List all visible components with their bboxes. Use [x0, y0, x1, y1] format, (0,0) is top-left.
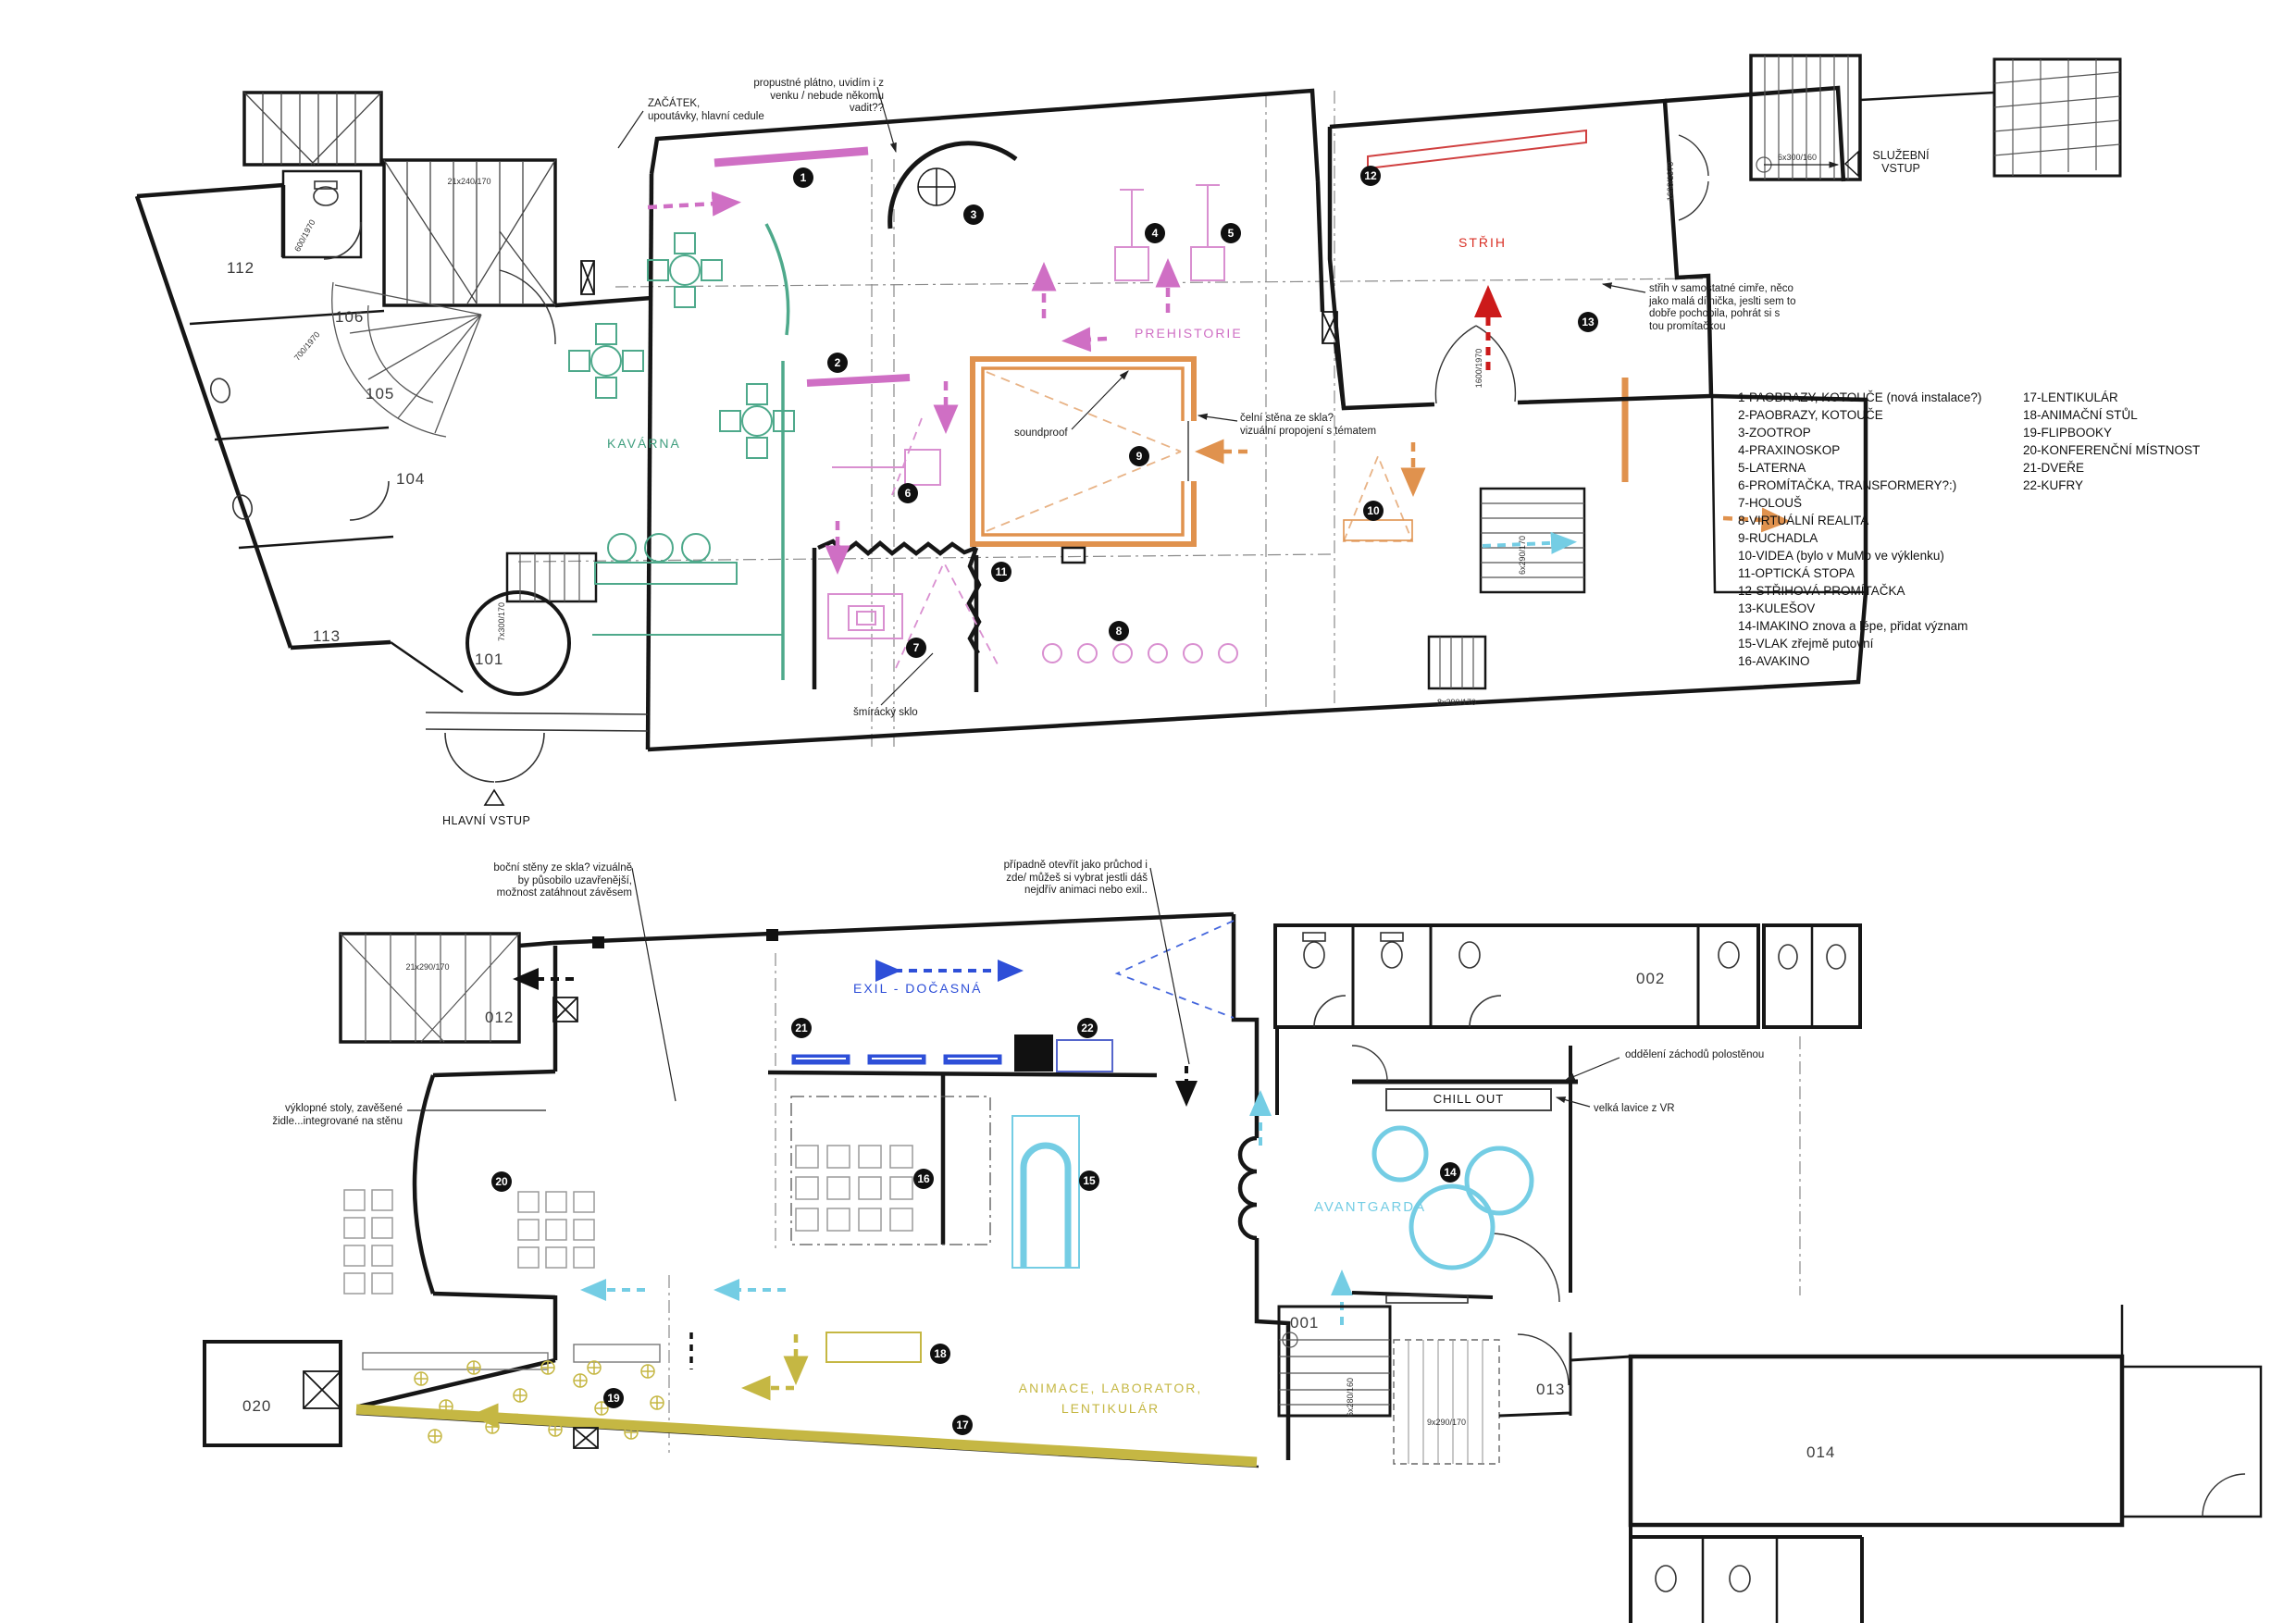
svg-text:10: 10 — [1367, 504, 1380, 517]
svg-text:18: 18 — [934, 1347, 947, 1360]
svg-text:6: 6 — [905, 487, 912, 500]
item-badge: 10 — [1363, 501, 1384, 521]
item-badge: 5 — [1221, 223, 1241, 243]
item-badge: 15 — [1079, 1171, 1099, 1191]
item-badge: 11 — [991, 562, 1011, 582]
item-badge: 22 — [1077, 1018, 1098, 1038]
door-label: 1600/1970 — [1474, 349, 1483, 389]
svg-text:17: 17 — [956, 1419, 969, 1431]
legend-item: 9-RUCHADLA — [1738, 529, 1981, 547]
entry-triangle — [1845, 152, 1858, 176]
svg-text:22: 22 — [1081, 1022, 1094, 1035]
legend-item: 13-KULEŠOV — [1738, 600, 1981, 617]
label-chill-out: CHILL OUT — [1386, 1092, 1551, 1106]
vestibule-101 — [426, 553, 648, 782]
room-number-014: 014 — [1806, 1443, 1835, 1462]
room-number-113: 113 — [313, 627, 341, 646]
annotation-bocni-steny: boční stěny ze skla? vizuálně by působil… — [477, 862, 632, 900]
pillar — [1014, 1035, 1053, 1072]
legend-item: 18-ANIMAČNÍ STŮL — [2023, 406, 2200, 424]
rooms-013-014 — [1499, 1305, 2261, 1623]
entrance-triangle — [485, 790, 503, 805]
room-label-prehistorie: PREHISTORIE — [1135, 326, 1243, 341]
svg-text:4: 4 — [1152, 227, 1159, 240]
room-label-kavarna: KAVÁRNA — [607, 436, 681, 451]
item-badge: 3 — [963, 204, 984, 225]
annotation-propustne: propustné plátno, uvidím i z venku / neb… — [731, 78, 884, 116]
legend-item: 4-PRAXINOSKOP — [1738, 441, 1981, 459]
legend-item: 15-VLAK zřejmě putovní — [1738, 635, 1981, 652]
door-label: 700/1970 — [292, 329, 322, 362]
legend-item: 17-LENTIKULÁR — [2023, 389, 2200, 406]
legend-item: 21-DVEŘE — [2023, 459, 2200, 477]
item-badge: 13 — [1578, 312, 1598, 332]
stair-6x290 — [1481, 489, 1584, 592]
legend-column-2: 17-LENTIKULÁR18-ANIMAČNÍ STŮL19-FLIPBOOK… — [2023, 389, 2200, 494]
legend-item: 2-PAOBRAZY, KOTOUČE — [1738, 406, 1981, 424]
avakino-seats — [344, 1146, 912, 1294]
svg-text:5: 5 — [1228, 227, 1235, 240]
room-number-104: 104 — [396, 470, 425, 489]
door-label: 1600/1970 — [1666, 162, 1675, 202]
stair-nw — [244, 93, 381, 165]
room-012-area — [520, 979, 577, 1022]
svg-text:19: 19 — [607, 1392, 620, 1405]
item-badge: 8 — [1109, 621, 1129, 641]
room-number-001: 001 — [1290, 1314, 1319, 1332]
annotation-hlavni-vstup: HLAVNÍ VSTUP — [442, 814, 530, 827]
svg-text:13: 13 — [1582, 316, 1595, 328]
legend-item: 10-VIDEA (bylo v MuMo ve výklenku) — [1738, 547, 1981, 564]
stair-label: 21x290/170 — [405, 962, 449, 972]
svg-text:15: 15 — [1083, 1174, 1096, 1187]
legend-column-1: 1-PAOBRAZY, KOTOUČE (nová instalace?)2-P… — [1738, 389, 1981, 670]
pillar — [766, 929, 778, 941]
legend-item: 19-FLIPBOOKY — [2023, 424, 2200, 441]
legend-item: 11-OPTICKÁ STOPA — [1738, 564, 1981, 582]
svg-text:1: 1 — [800, 171, 807, 184]
room-number-012: 012 — [485, 1009, 514, 1027]
lower-plan: 21x290/170 — [205, 868, 2261, 1623]
cafe-furniture — [569, 224, 794, 680]
svg-text:21: 21 — [795, 1022, 808, 1035]
leader-lines — [618, 87, 1645, 705]
room-number-013: 013 — [1536, 1381, 1565, 1399]
suitcases — [1057, 1040, 1112, 1072]
stair-label: 7x300/170 — [497, 602, 506, 641]
annotation-soundproof: soundproof — [1014, 427, 1068, 440]
legend-item: 14-IMAKINO znova a lépe, přidat význam — [1738, 617, 1981, 635]
strih-projector-bench — [1368, 130, 1586, 168]
svg-text:11: 11 — [996, 565, 1008, 578]
stair-label: 8x290/170 — [1437, 698, 1476, 707]
legend-item: 16-AVAKINO — [1738, 652, 1981, 670]
legend-item: 5-LATERNA — [1738, 459, 1981, 477]
left-wing: 21x240/170 600/1970 700/1970 — [137, 93, 652, 805]
svg-text:20: 20 — [495, 1175, 508, 1188]
stair-label: 6x280/160 — [1346, 1378, 1355, 1417]
stairs-bottom-center: 9x290/170 — [1394, 1340, 1499, 1464]
avantgarda-room — [1277, 1027, 1578, 1303]
svg-text:9: 9 — [1136, 450, 1143, 463]
legend-item: 7-HOLOUŠ — [1738, 494, 1981, 512]
svg-text:8: 8 — [1116, 625, 1123, 638]
item-badge: 7 — [906, 638, 926, 658]
svg-text:3: 3 — [971, 208, 977, 221]
legend-item: 22-KUFRY — [2023, 477, 2200, 494]
pillar — [592, 936, 604, 948]
room-label-animace: ANIMACE, LABORATOR, LENTIKULÁR — [999, 1378, 1222, 1419]
item-badge: 6 — [898, 483, 918, 503]
item-badge: 4 — [1145, 223, 1165, 243]
item-badge: 20 — [491, 1171, 512, 1192]
annotation-oddeleni: oddělení záchodů polostěnou — [1625, 1049, 1764, 1062]
prehistorie-elements — [648, 143, 1237, 668]
legend-item: 3-ZOOTROP — [1738, 424, 1981, 441]
legend-item: 12-STŘIHOVÁ PROMÍTAČKA — [1738, 582, 1981, 600]
room-020 — [205, 1342, 341, 1445]
room-number-106: 106 — [335, 308, 364, 327]
room-number-112: 112 — [227, 259, 254, 278]
svg-text:14: 14 — [1444, 1166, 1457, 1179]
stair-8x290 — [1429, 637, 1485, 688]
stair-label: 21x240/170 — [447, 177, 490, 186]
svg-text:16: 16 — [917, 1172, 930, 1185]
svg-text:2: 2 — [835, 356, 841, 369]
annotation-strih-note: střih v samostatné cimře, něco jako malá… — [1649, 283, 1796, 333]
item-badge: 17 — [952, 1415, 973, 1435]
soundproof-room — [973, 359, 1247, 563]
room-label-strih: STŘIH — [1458, 235, 1507, 250]
room-number-101: 101 — [475, 650, 503, 669]
screen-bar — [714, 151, 868, 163]
item-badge: 19 — [603, 1388, 624, 1408]
stair-label: 9x290/170 — [1427, 1418, 1466, 1427]
item-badge: 9 — [1129, 446, 1149, 466]
stair-label: 6x300/160 — [1778, 153, 1817, 162]
room-number-002: 002 — [1636, 970, 1665, 988]
item-badge: 12 — [1360, 166, 1381, 186]
svg-text:12: 12 — [1364, 169, 1377, 182]
annotation-lavice: velká lavice z VR — [1594, 1103, 1675, 1116]
route-arrows-cyan — [588, 1097, 1342, 1325]
item-badge: 2 — [827, 353, 848, 373]
legend-item: 1-PAOBRAZY, KOTOUČE (nová instalace?) — [1738, 389, 1981, 406]
legend-item: 8-VIRTUÁLNÍ REALITA — [1738, 512, 1981, 529]
item-badge: 1 — [793, 167, 813, 188]
room-label-exil: EXIL - DOČASNÁ — [853, 981, 983, 996]
toilets-002 — [1275, 925, 1860, 1027]
floor-plan-canvas: 21x240/170 600/1970 700/1970 — [0, 0, 2296, 1623]
door-label: 600/1970 — [292, 218, 316, 254]
route-arrows-magenta — [648, 203, 1168, 566]
item-badge: 14 — [1440, 1162, 1460, 1183]
strih-room: 1600/1970 1600/1970 — [1330, 88, 1843, 408]
annotation-sluzebni-vstup: SLUŽEBNÍ VSTUP — [1864, 150, 1938, 175]
annotation-celni-stena: čelní stěna ze skla? vizuální propojení … — [1240, 413, 1376, 438]
room-label-avantgarda: AVANTGARDA — [1314, 1199, 1426, 1215]
svg-text:7: 7 — [913, 641, 920, 654]
item-badge: 21 — [791, 1018, 812, 1038]
annotation-smiracky-sklo: šmírácký sklo — [853, 707, 918, 720]
item-badge: 18 — [930, 1344, 950, 1364]
annotation-pripadne: případně otevřít jako průchod i zde/ můž… — [992, 860, 1148, 898]
room-number-105: 105 — [366, 385, 394, 403]
room-number-020: 020 — [242, 1397, 271, 1416]
annotation-vyklopne: výklopné stoly, zavěšené židle...integro… — [259, 1103, 403, 1128]
item-badge: 16 — [913, 1169, 934, 1189]
animation-table — [826, 1332, 921, 1362]
avantgarda-circles — [1374, 1128, 1532, 1268]
train-car — [1012, 1116, 1079, 1268]
item-badges-lower: 14 15 16 17 18 19 20 21 22 — [491, 1018, 1460, 1435]
legend-item: 20-KONFERENČNÍ MÍSTNOST — [2023, 441, 2200, 459]
legend-item: 6-PROMÍTAČKA, TRANSFORMERY?:) — [1738, 477, 1981, 494]
stair-label: 6x290/170 — [1518, 536, 1527, 575]
